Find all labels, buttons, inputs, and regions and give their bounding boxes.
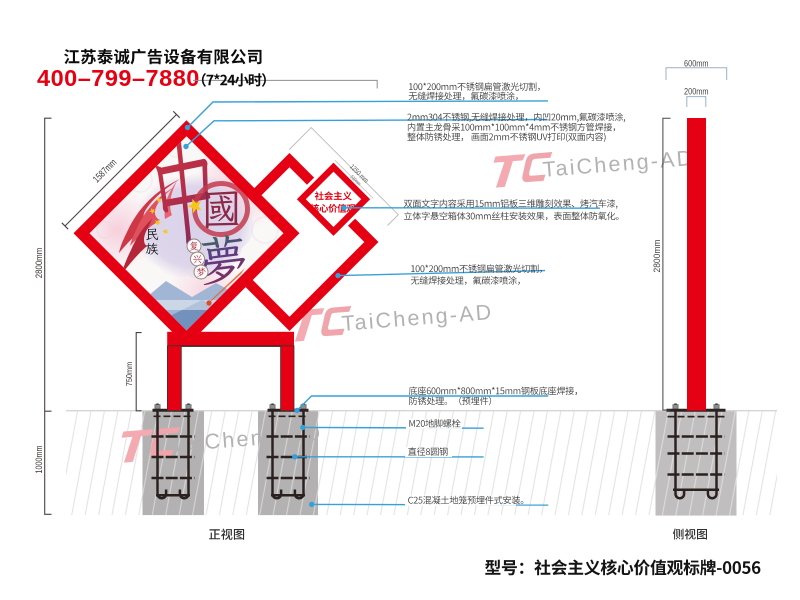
svg-text:2800mm: 2800mm <box>652 239 662 272</box>
svg-text:2800mm: 2800mm <box>34 248 45 279</box>
svg-text:200mm: 200mm <box>684 87 709 97</box>
svg-text:1000mm: 1000mm <box>34 445 45 473</box>
svg-text:600mm: 600mm <box>684 58 709 68</box>
svg-text:750mm: 750mm <box>124 362 134 387</box>
svg-text:400–799–7880: 400–799–7880 <box>37 65 200 91</box>
